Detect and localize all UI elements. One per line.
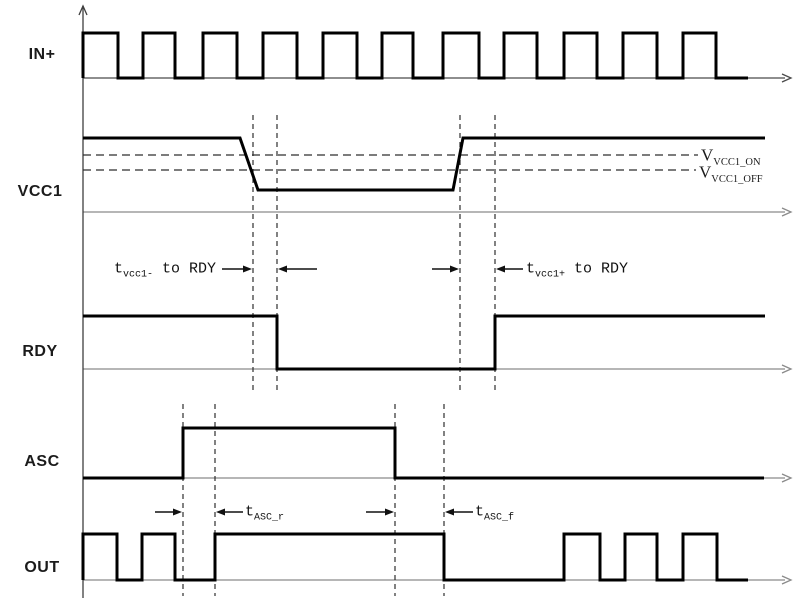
timing-base: t	[475, 504, 484, 521]
timing-base: t	[245, 504, 254, 521]
threshold-base: V	[699, 163, 711, 182]
timing-arrowhead-icon-tvcc1-fall-to-rdy-1	[278, 266, 287, 273]
timing-label-tvcc1-fall-to-rdy: tvcc1- to RDY	[114, 262, 216, 277]
timing-rest: to RDY	[565, 261, 628, 278]
signal-trace-in-plus	[83, 33, 748, 78]
timing-label-tvcc1-rise-to-rdy: tvcc1+ to RDY	[526, 262, 628, 277]
timing-base: t	[114, 261, 123, 278]
signal-label-vcc1: VCC1	[18, 183, 63, 201]
timing-arrowhead-icon-t-asc-r-1	[216, 509, 225, 516]
timing-arrowhead-icon-t-asc-r-2	[385, 509, 394, 516]
threshold-label-vvcc1-on: VVCC1_ON	[701, 147, 761, 164]
signal-label-asc: ASC	[24, 453, 59, 471]
timing-sub: vcc1-	[123, 270, 153, 281]
timing-arrowhead-icon-tvcc1-rise-to-rdy-1	[496, 266, 505, 273]
timing-sub: ASC_r	[254, 513, 284, 524]
signal-trace-rdy	[83, 316, 765, 369]
threshold-sub: VCC1_OFF	[711, 174, 762, 185]
waveform-canvas	[0, 0, 804, 598]
timing-base: t	[526, 261, 535, 278]
timing-sub: ASC_f	[484, 513, 514, 524]
timing-rest: to RDY	[153, 261, 216, 278]
timing-arrowhead-icon-t-asc-r-0	[173, 509, 182, 516]
signal-trace-vcc1	[83, 138, 765, 190]
threshold-label-vvcc1-off: VVCC1_OFF	[699, 164, 763, 181]
signal-label-out: OUT	[24, 559, 59, 577]
timing-arrowhead-icon-tvcc1-rise-to-rdy-0	[450, 266, 459, 273]
signal-trace-asc	[83, 428, 764, 478]
timing-arrowhead-icon-tvcc1-fall-to-rdy-0	[243, 266, 252, 273]
timing-sub: vcc1+	[535, 270, 565, 281]
timing-label-t-asc-f: tASC_f	[475, 505, 514, 520]
signal-label-in-plus: IN+	[29, 46, 56, 64]
timing-arrowhead-icon-t-asc-f-0	[445, 509, 454, 516]
timing-diagram: IN+ VCC1 RDY ASC OUT VVCC1_ON VVCC1_OFF …	[0, 0, 804, 598]
timing-label-t-asc-r: tASC_r	[245, 505, 284, 520]
signal-label-rdy: RDY	[22, 343, 57, 361]
